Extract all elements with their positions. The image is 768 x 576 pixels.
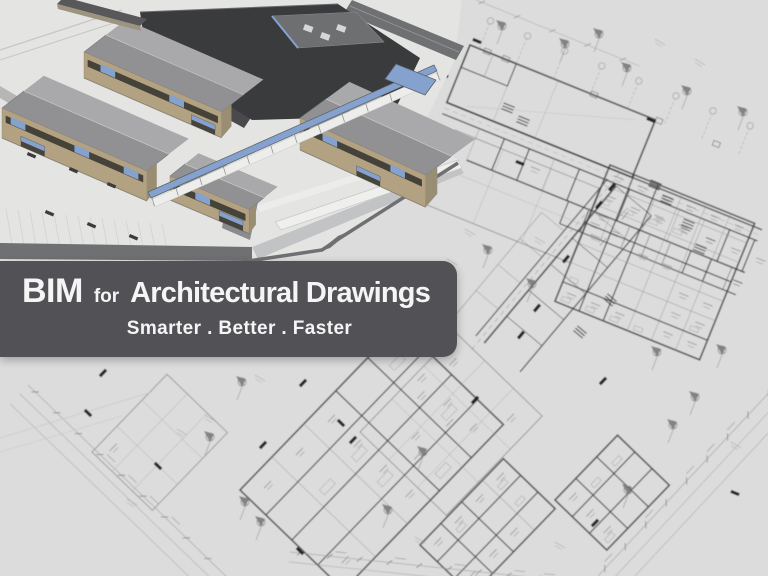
brand-text: BIM xyxy=(22,274,83,310)
title-text: Architectural Drawings xyxy=(130,278,430,308)
connector-text: for xyxy=(94,287,119,307)
tagline: Smarter . Better . Faster xyxy=(22,318,457,340)
hero-image: BIM for Architectural Drawings Smarter .… xyxy=(0,0,768,576)
title-banner: BIM for Architectural Drawings Smarter .… xyxy=(0,261,457,357)
banner-title: BIM for Architectural Drawings xyxy=(22,274,457,310)
